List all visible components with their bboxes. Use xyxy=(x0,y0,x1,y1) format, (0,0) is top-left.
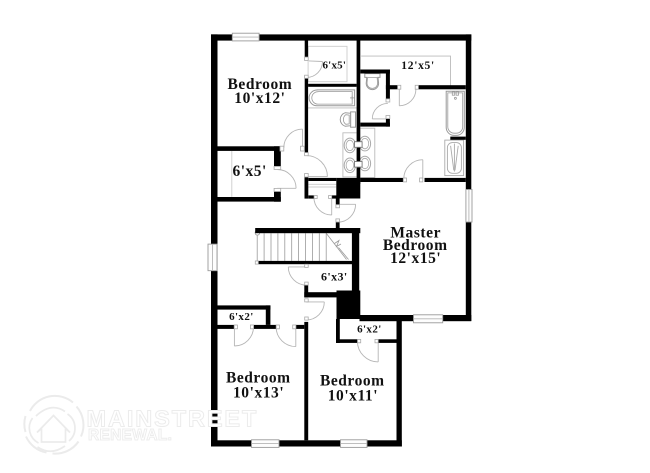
svg-text:10'x12': 10'x12' xyxy=(234,90,285,107)
svg-text:6'x2': 6'x2' xyxy=(229,311,254,323)
svg-text:6'x5': 6'x5' xyxy=(322,60,346,72)
svg-text:10'x13': 10'x13' xyxy=(233,384,284,401)
svg-text:6'x2': 6'x2' xyxy=(357,324,382,336)
svg-text:RENEWAL.: RENEWAL. xyxy=(88,427,172,444)
svg-text:6'x3': 6'x3' xyxy=(321,270,348,284)
svg-text:10'x11': 10'x11' xyxy=(328,387,378,404)
svg-text:12'x15': 12'x15' xyxy=(390,250,441,267)
svg-text:6'x5': 6'x5' xyxy=(233,163,267,180)
svg-text:12'x5': 12'x5' xyxy=(401,60,435,72)
